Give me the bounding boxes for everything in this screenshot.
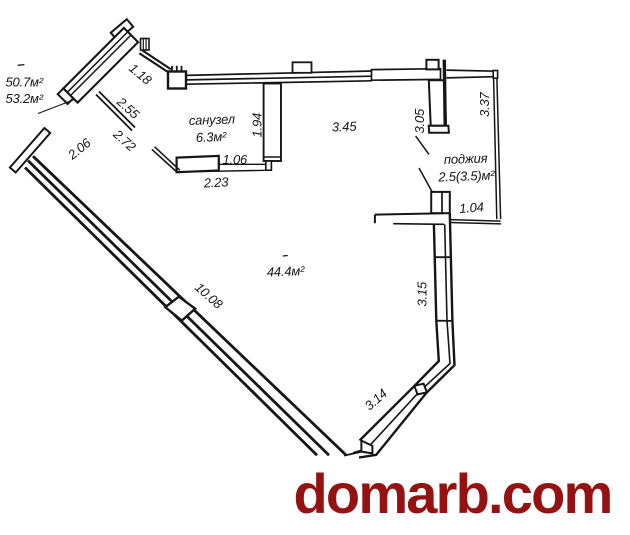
svg-text:1.94: 1.94 [250,113,265,138]
svg-text:2.23: 2.23 [202,174,229,190]
svg-text:domarb.com: domarb.com [294,462,612,525]
svg-text:44.4м²: 44.4м² [267,263,306,279]
svg-text:6.3м²: 6.3м² [196,129,228,145]
svg-text:3.05: 3.05 [412,108,427,133]
svg-text:3.45: 3.45 [332,119,358,135]
svg-text:поджия: поджия [444,150,488,167]
svg-text:санузел: санузел [189,111,236,128]
svg-text:50.7м²: 50.7м² [6,75,44,90]
svg-text:1.06: 1.06 [223,152,248,167]
svg-text:2.5(3.5)м²: 2.5(3.5)м² [437,168,495,185]
svg-text:3.15: 3.15 [415,281,430,306]
svg-text:1.04: 1.04 [459,199,485,216]
svg-text:53.2м²: 53.2м² [6,91,44,106]
svg-text:3.37: 3.37 [477,92,492,117]
